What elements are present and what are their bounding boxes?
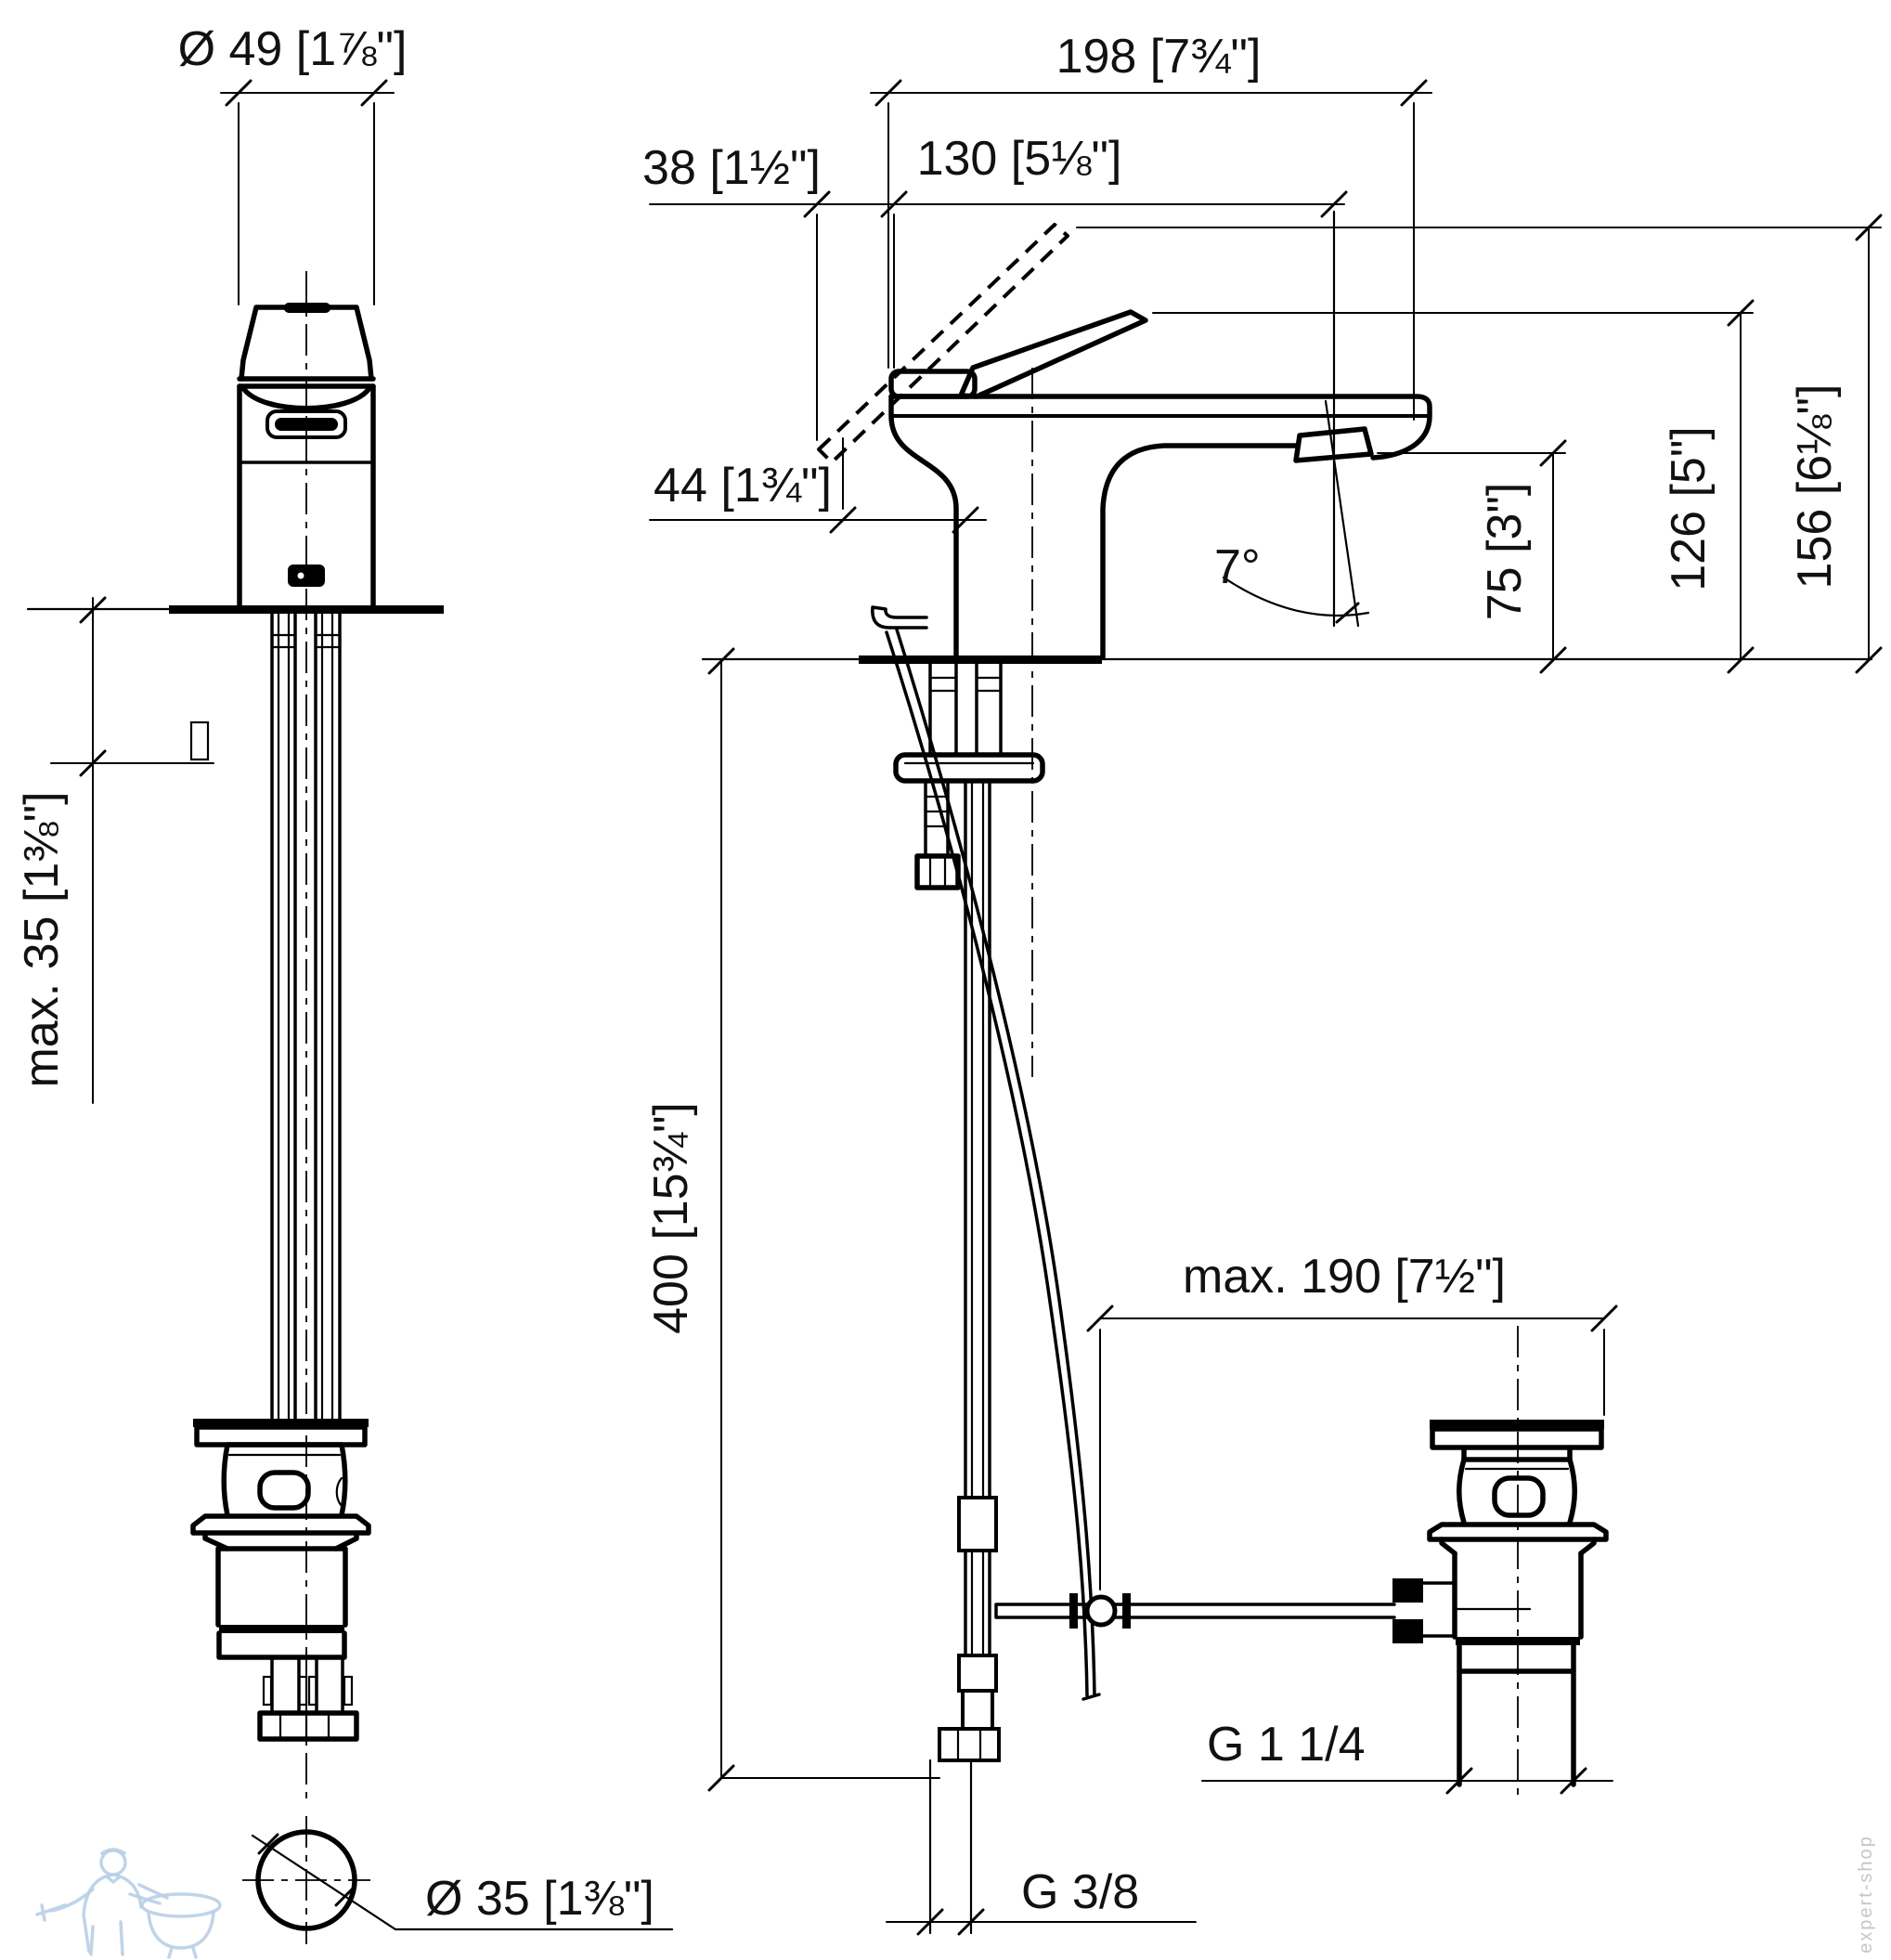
dim-rod-reach: max. 190 [7½"]	[1183, 1250, 1506, 1304]
hose-nut	[939, 1729, 999, 1760]
rod-ball-joint	[1087, 1597, 1115, 1625]
handle-top-slot	[284, 303, 330, 313]
front-view	[28, 271, 672, 1944]
faucet-dimension-drawing: Ø 49 [1⅞"] max. 35 [1⅜"] Ø 35 [1⅜"]	[0, 0, 1891, 1960]
dim-max-counter-thickness: max. 35 [1⅜"]	[15, 791, 69, 1087]
shop-watermark-text: expert-shop	[1856, 1835, 1876, 1954]
dim-handle-height: 126 [5"]	[1662, 426, 1716, 591]
lever-handle	[961, 312, 1146, 396]
side-view-dimensions: 198 [7¾"] 38 [1½"] 130 [5⅛"] 44 [1¾"] 7°…	[642, 30, 1881, 1934]
dim-raised-handle-height: 156 [6⅛"]	[1788, 384, 1842, 590]
dim-aerator-height: 75 [3"]	[1478, 483, 1532, 621]
technical-drawing-page: Ø 49 [1⅞"] max. 35 [1⅜"] Ø 35 [1⅜"]	[0, 0, 1891, 1960]
drain-assembly-view: G 1 1/4	[1202, 1326, 1613, 1801]
spout-outlet	[275, 418, 338, 431]
dim-handle-diameter: Ø 49 [1⅞"]	[178, 22, 408, 76]
dim-supply-thread: G 3/8	[1021, 1865, 1139, 1919]
plumber-watermark	[37, 1850, 220, 1957]
dim-base-offset: 44 [1¾"]	[654, 459, 832, 513]
dim-hose-length: 400 [15¾"]	[644, 1102, 698, 1334]
dim-hole-diameter: Ø 35 [1⅜"]	[425, 1872, 654, 1926]
drain-tailpipe	[1459, 1671, 1574, 1785]
dim-handle-offset: 38 [1½"]	[642, 141, 821, 195]
dim-spray-angle: 7°	[1214, 540, 1261, 594]
dim-total-projection: 198 [7¾"]	[1056, 30, 1262, 84]
dim-spout-projection: 130 [5⅛"]	[917, 132, 1122, 186]
counter-section	[169, 605, 444, 614]
dim-drain-thread: G 1 1/4	[1207, 1718, 1366, 1772]
lever-raised-position	[819, 225, 1068, 462]
rod-gland	[1392, 1578, 1423, 1603]
drain-lever-rod	[996, 1604, 1394, 1617]
pull-rod-knob	[873, 607, 926, 628]
brand-logo-plate	[288, 565, 325, 587]
